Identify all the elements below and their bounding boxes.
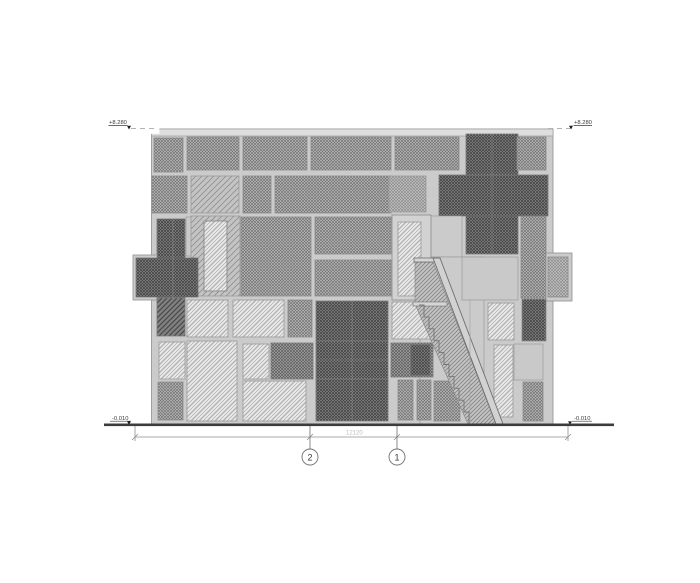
svg-text:1: 1 [394,453,399,463]
svg-text:+8.280: +8.280 [109,120,127,126]
svg-text:12120: 12120 [346,431,363,437]
svg-text:2: 2 [307,453,312,463]
svg-text:+8.280: +8.280 [574,120,592,126]
